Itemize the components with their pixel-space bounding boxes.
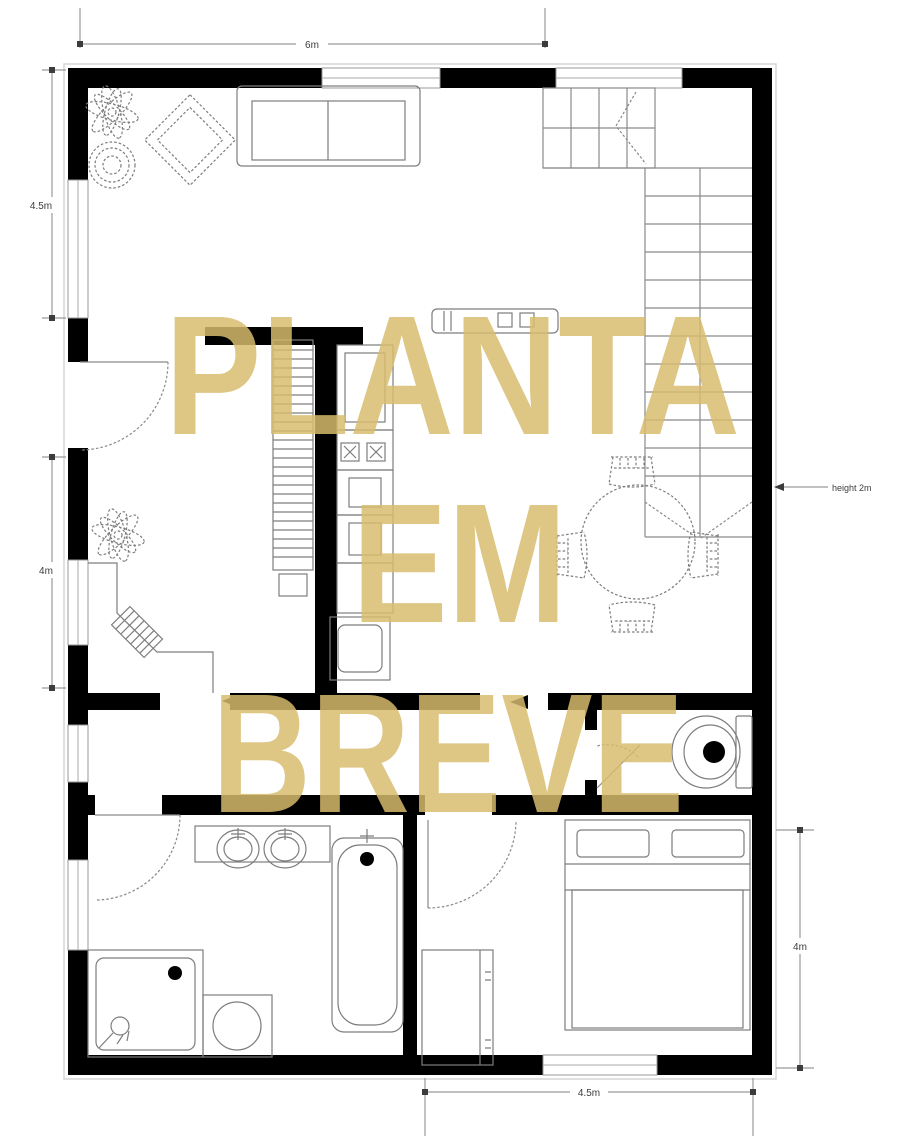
- bathroom-furniture: [88, 826, 403, 1057]
- dim-label-left-upper: 4.5m: [30, 201, 52, 212]
- bathtub-icon: [332, 829, 403, 1032]
- dimension-right-lower: 4m: [776, 827, 814, 1071]
- dining-table-icon: [581, 485, 695, 599]
- stair-height-label: height 2m: [832, 483, 872, 493]
- window-top-1: [322, 68, 440, 88]
- shower-icon: [88, 950, 203, 1057]
- plant-icon: [84, 84, 140, 140]
- dimension-top: 6m: [77, 8, 548, 51]
- toilet-icon: [672, 716, 752, 788]
- bathroom-door: [95, 815, 180, 900]
- watermark-line-1: PLANTA: [165, 281, 740, 471]
- dim-label-left-lower: 4m: [39, 566, 53, 577]
- dining-furniture: [557, 457, 718, 632]
- floor-plan-drawing: 6m 4.5m 4m 4m: [0, 0, 900, 1144]
- dimension-left-upper: 4.5m: [22, 67, 66, 321]
- planter-pot-icon: [89, 142, 135, 188]
- dining-chair-icon: [609, 602, 655, 632]
- wardrobe-icon: [422, 950, 493, 1065]
- plant-icon-2: [90, 507, 146, 563]
- armchair-icon: [145, 95, 236, 186]
- watermark-line-2: EM: [352, 469, 567, 659]
- watermark-line-3: BREVE: [212, 659, 684, 849]
- wc-furniture: [672, 716, 752, 788]
- dim-label-bottom: 4.5m: [578, 1088, 600, 1099]
- dimension-bottom: 4.5m: [422, 1078, 756, 1136]
- dim-label-right-lower: 4m: [793, 942, 807, 953]
- window-left-bathroom: [68, 860, 88, 950]
- floor-plan-page: 6m 4.5m 4m 4m: [0, 0, 900, 1144]
- watermark: PLANTA EM BREVE: [165, 281, 740, 849]
- entrance-door: [80, 362, 168, 450]
- window-top-2: [556, 68, 682, 88]
- sofa-icon: [237, 86, 420, 166]
- window-left-middle: [68, 560, 88, 645]
- window-left-living: [68, 180, 88, 318]
- window-left-hall: [68, 725, 88, 782]
- dimension-left-lower: 4m: [32, 454, 66, 691]
- bedroom-furniture: [422, 820, 750, 1065]
- window-bottom-bedroom: [543, 1055, 657, 1075]
- washing-machine-icon: [203, 995, 272, 1057]
- dining-chair-icon: [688, 532, 718, 578]
- double-bed-icon: [565, 820, 750, 1030]
- dim-label-top: 6m: [305, 40, 319, 51]
- corner-desk-icon: [88, 563, 213, 693]
- stair-height-note: height 2m: [774, 483, 872, 493]
